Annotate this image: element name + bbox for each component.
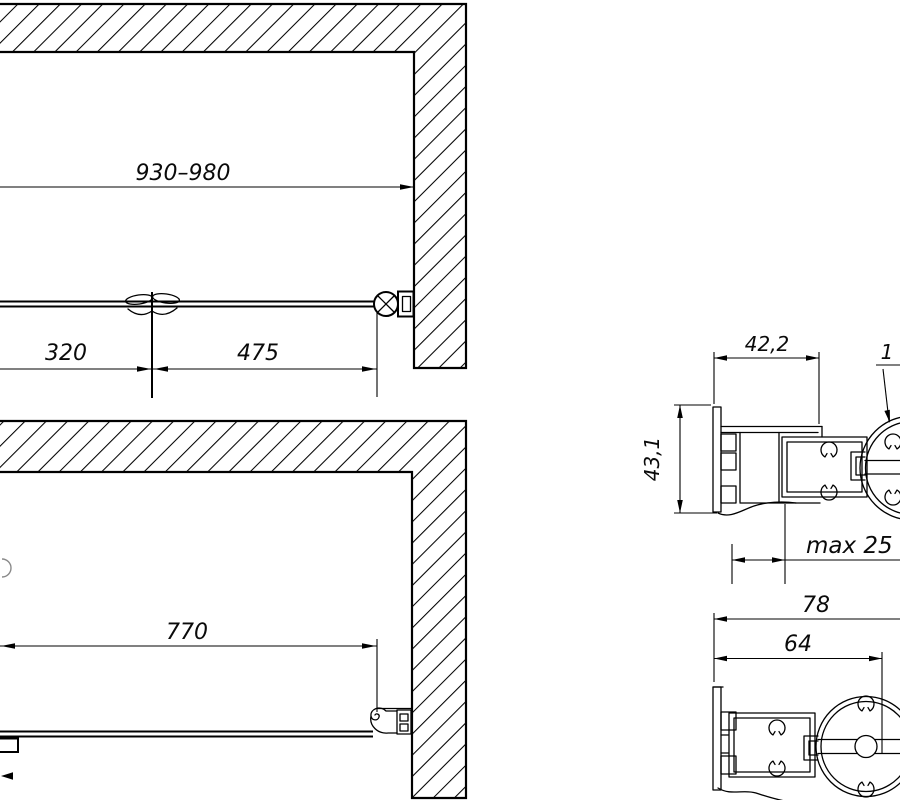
dim-profile-depth: 42,2 xyxy=(745,332,790,356)
dim-door-width: 770 xyxy=(166,620,208,645)
dim-profile-height: 43,1 xyxy=(640,437,664,482)
technical-drawing-page: 930–980 320 475 xyxy=(0,0,900,800)
callout-number: 1 xyxy=(881,340,894,364)
technical-drawing: 930–980 320 475 xyxy=(0,0,900,800)
dim-overall-width: 930–980 xyxy=(136,161,231,186)
dim-axis-depth: 64 xyxy=(784,632,812,657)
dim-max-adjustment: max 25 мм xyxy=(806,533,900,559)
dim-overall-depth: 78 xyxy=(802,593,830,618)
dim-right-panel: 475 xyxy=(237,341,279,366)
dim-left-panel: 320 xyxy=(45,341,87,366)
